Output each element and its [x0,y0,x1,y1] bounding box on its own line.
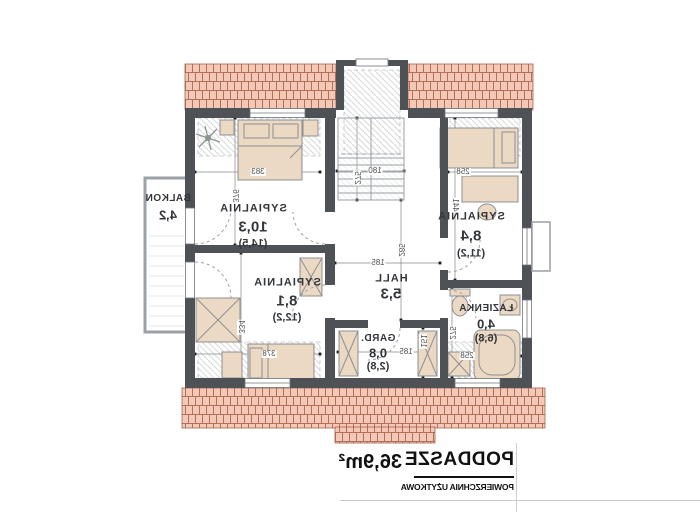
bathroom-total: (6,8) [475,334,498,345]
roof-tiles-bottom [182,388,545,443]
dim-hall-w: 185 [370,259,385,267]
single-bed [440,128,518,168]
bedroom2-total: (11,2) [457,249,485,260]
bedroom3-total: (12,2) [273,313,302,324]
bedroom3-name: SYPIALNIA [253,278,321,289]
title-area-value: 36,9m² [339,451,402,474]
title-divider-line [516,443,517,512]
floor-plan-screenshot: SYPIALNIA 10,3 (14,5) SYPIALNIA 8,4 (11,… [0,0,700,512]
balcony-area: 4,2 [159,209,177,222]
wardrobe-name: GARD. [361,334,396,344]
plan-mirror-wrapper: SYPIALNIA 10,3 (14,5) SYPIALNIA 8,4 (11,… [0,0,700,512]
bed-bottom [248,344,314,382]
bedroom1-name: SYPIALNIA [219,204,287,215]
title-subtitle: POWIERZCHNIA UŻYTKOWA [401,482,514,492]
title-poddasze: PODDASZE [404,449,514,471]
dim-wardrobe-h: 151 [419,333,427,348]
bedroom3-area: 8,1 [277,294,298,309]
title-underline [414,476,514,478]
dim-bedroom3-w: 378 [261,350,276,358]
bathroom-name: ŁAZIENKA [459,304,514,314]
dim-bathroom-h: 275 [448,325,456,340]
floor-plan-canvas [0,0,700,512]
dim-bedroom2-h: 441 [451,197,459,212]
bathroom-area: 4,0 [477,318,495,331]
dim-bedroom1-w: 383 [250,168,265,176]
dim-stairs-w: 180 [367,167,382,175]
hall-area: 5,3 [381,287,402,302]
dim-bedroom3-h: 334 [237,319,245,334]
hall-name: HALL [374,274,407,285]
bedroom2-name: SYPIALNIA [437,212,505,223]
dim-hall-h: 285 [397,242,405,257]
bedroom2-area: 8,4 [461,229,482,244]
dim-wardrobe-w: 185 [398,348,413,356]
dim-bedroom2-w: 258 [455,168,470,176]
balcony-name: BALKON [145,194,191,204]
wardrobe-total: (2,8) [367,362,390,373]
wardrobe-area: 0,8 [369,347,387,360]
bedroom1-total: (14,5) [239,239,268,250]
stairs [338,118,404,200]
dim-stairs-h: 275 [353,170,361,185]
dim-bedroom1-h: 376 [231,188,239,203]
bedroom1-area: 10,3 [238,220,267,235]
footer-line [340,500,700,501]
dim-bathroom-w: 258 [459,352,474,360]
